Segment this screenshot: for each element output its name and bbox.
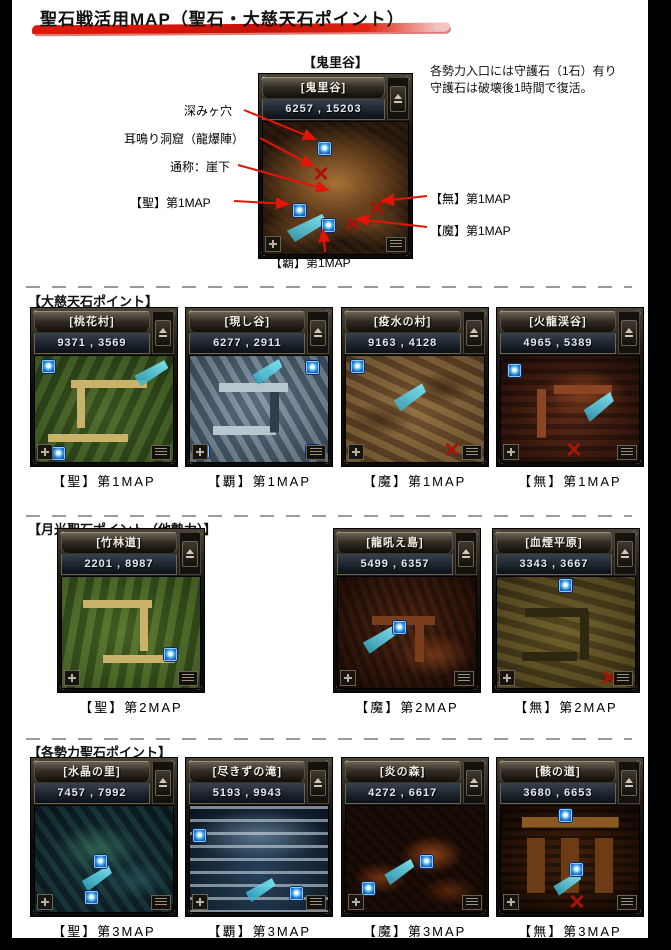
map-card: [火龍渓谷] 4965 , 5389 【無】第1MAP	[496, 307, 644, 490]
x-mark-icon	[370, 201, 384, 215]
eject-icon-bar	[625, 335, 633, 337]
section-divider	[26, 515, 632, 517]
eject-icon-triangle	[625, 778, 633, 783]
eject-icon-triangle	[394, 94, 402, 99]
map-caption: 【無】第2MAP	[492, 697, 640, 716]
eject-icon	[617, 541, 633, 567]
map-card: [水晶の里] 7457 , 7992 【聖】第3MAP	[30, 757, 178, 938]
beam-marker-icon	[584, 392, 614, 422]
x-mark-icon	[570, 895, 584, 909]
plus-button	[64, 670, 80, 686]
map-title: [疫水の村]	[345, 311, 461, 333]
map-title: [炎の森]	[345, 761, 461, 783]
map-card: [桃花村] 9371 , 3569 【聖】第1MAP	[30, 307, 178, 490]
eject-icon-bar	[186, 556, 194, 558]
eject-button	[463, 311, 485, 354]
panel-button	[306, 445, 326, 460]
stone-marker-icon	[290, 887, 303, 900]
eject-button	[152, 311, 174, 354]
minimap-image	[61, 576, 201, 689]
section-divider	[26, 738, 632, 740]
eject-icon	[155, 770, 171, 796]
plus-button	[265, 236, 281, 252]
plus-button	[340, 670, 356, 686]
eject-icon-triangle	[159, 328, 167, 333]
eject-button	[455, 532, 477, 575]
stone-marker-icon	[94, 855, 107, 868]
beam-marker-icon	[384, 859, 414, 885]
eject-icon	[310, 320, 326, 346]
eject-icon-bar	[314, 785, 322, 787]
map-coordinates: 3680 , 6653	[500, 783, 616, 804]
minimap-image	[496, 576, 636, 689]
eject-button	[307, 761, 329, 804]
map-title: [骸の道]	[500, 761, 616, 783]
stone-marker-icon	[559, 809, 572, 822]
eject-button	[618, 761, 640, 804]
map-card: [尽きずの滝] 5193 , 9943 【覇】第3MAP	[185, 757, 333, 938]
stone-marker-icon	[306, 361, 319, 374]
map-title: [桃花村]	[34, 311, 150, 333]
annotation-label: 【無】第1MAP	[430, 190, 511, 207]
beam-marker-icon	[246, 878, 276, 902]
eject-icon-triangle	[314, 328, 322, 333]
panel-button	[462, 445, 482, 460]
map-card: [骸の道] 3680 , 6653 【無】第3MAP	[496, 757, 644, 938]
plus-button	[503, 894, 519, 910]
eject-icon-triangle	[314, 778, 322, 783]
stone-marker-icon	[293, 204, 306, 217]
minimap-image	[337, 576, 477, 689]
eject-icon-triangle	[462, 549, 470, 554]
panel-button	[613, 671, 633, 686]
map-title: [火龍渓谷]	[500, 311, 616, 333]
eject-button	[387, 77, 409, 120]
panel-button	[151, 895, 171, 910]
map-title: [竹林道]	[61, 532, 177, 554]
eject-button	[179, 532, 201, 575]
page-title: 聖石戦活用MAP（聖石・大慈天石ポイント）	[40, 5, 405, 30]
map-caption: 【無】第1MAP	[496, 471, 644, 490]
eject-button	[614, 532, 636, 575]
stone-marker-icon	[322, 219, 335, 232]
eject-icon	[621, 320, 637, 346]
eject-icon-bar	[625, 785, 633, 787]
beam-marker-icon	[363, 626, 397, 654]
panel-button	[617, 445, 637, 460]
panel-button	[306, 895, 326, 910]
minimap-image	[34, 805, 174, 913]
page-frame: 聖石戦活用MAP（聖石・大慈天石ポイント） 【鬼里谷】 [鬼里谷] 6257 ,…	[0, 0, 671, 950]
eject-button	[307, 311, 329, 354]
stone-marker-icon	[351, 360, 364, 373]
beam-marker-icon	[134, 360, 168, 386]
eject-icon-bar	[470, 335, 478, 337]
eject-button	[463, 761, 485, 804]
eject-icon-bar	[621, 556, 629, 558]
map-caption: 【覇】第1MAP	[185, 471, 333, 490]
annotation-label: 通称：崖下	[170, 158, 230, 175]
eject-icon-bar	[470, 785, 478, 787]
stone-marker-icon	[508, 364, 521, 377]
eject-icon	[390, 86, 406, 112]
note-line: 各勢力入口には守護石（1石）有り	[430, 63, 617, 80]
note-text: 各勢力入口には守護石（1石）有り 守護石は破壊後1時間で復活。	[430, 63, 617, 97]
map-coordinates: 7457 , 7992	[34, 783, 150, 804]
plus-button	[192, 894, 208, 910]
section-divider	[26, 286, 632, 288]
eject-icon-triangle	[625, 328, 633, 333]
plus-button	[192, 444, 208, 460]
annotation-label: 【覇】第1MAP	[270, 254, 351, 271]
eject-icon	[466, 320, 482, 346]
minimap-image	[500, 355, 640, 463]
eject-icon-bar	[314, 335, 322, 337]
annotation-label: 【聖】第1MAP	[130, 194, 211, 211]
stone-marker-icon	[420, 855, 433, 868]
map-caption: 【聖】第2MAP	[57, 697, 205, 716]
map-caption: 【覇】第3MAP	[185, 921, 333, 938]
map-card: [龍吼え島] 5499 , 6357 【魔】第2MAP	[333, 528, 481, 716]
stone-marker-icon	[362, 882, 375, 895]
map-card: [現し谷] 6277 , 2911 【覇】第1MAP	[185, 307, 333, 490]
eject-icon-bar	[159, 335, 167, 337]
x-mark-icon	[314, 167, 328, 181]
map-caption: 【無】第3MAP	[496, 921, 644, 938]
map-coordinates: 5193 , 9943	[189, 783, 305, 804]
document-page: 聖石戦活用MAP（聖石・大慈天石ポイント） 【鬼里谷】 [鬼里谷] 6257 ,…	[12, 0, 648, 938]
map-caption: 【魔】第2MAP	[333, 697, 481, 716]
eject-icon-bar	[462, 556, 470, 558]
map-card: [血煙平原] 3343 , 3667 【無】第2MAP	[492, 528, 640, 716]
map-card: [炎の森] 4272 , 6617 【魔】第3MAP	[341, 757, 489, 938]
map-title: [龍吼え島]	[337, 532, 453, 554]
x-mark-icon	[567, 443, 581, 457]
annotation-label: 深みヶ穴	[184, 102, 232, 119]
map-coordinates: 2201 , 8987	[61, 554, 177, 575]
note-line: 守護石は破壊後1時間で復活。	[430, 80, 617, 97]
map-title: [尽きずの滝]	[189, 761, 305, 783]
map-caption: 【魔】第3MAP	[341, 921, 489, 938]
stone-marker-icon	[52, 447, 65, 460]
eject-icon	[458, 541, 474, 567]
stone-marker-icon	[318, 142, 331, 155]
plus-button	[348, 444, 364, 460]
minimap-image	[189, 805, 329, 913]
panel-button	[462, 895, 482, 910]
panel-button	[178, 671, 198, 686]
eject-icon-triangle	[186, 549, 194, 554]
map-coordinates: 6257 , 15203	[262, 99, 385, 120]
stone-marker-icon	[193, 829, 206, 842]
stone-marker-icon	[393, 621, 406, 634]
top-map-heading: 【鬼里谷】	[258, 52, 413, 71]
panel-button	[617, 895, 637, 910]
panel-button	[151, 445, 171, 460]
beam-marker-icon	[82, 865, 112, 891]
plus-button	[499, 670, 515, 686]
eject-icon	[155, 320, 171, 346]
map-coordinates: 3343 , 3667	[496, 554, 612, 575]
minimap-image	[345, 805, 485, 913]
beam-marker-icon	[252, 359, 282, 385]
annotation-label: 【魔】第1MAP	[430, 222, 511, 239]
map-card: [疫水の村] 9163 , 4128 【魔】第1MAP	[341, 307, 489, 490]
plus-button	[348, 894, 364, 910]
beam-marker-icon	[394, 384, 426, 412]
map-title: [現し谷]	[189, 311, 305, 333]
minimap-image	[189, 355, 329, 463]
eject-icon-triangle	[621, 549, 629, 554]
stone-marker-icon	[559, 579, 572, 592]
stone-marker-icon	[85, 891, 98, 904]
x-mark-icon	[445, 443, 459, 457]
map-title: [鬼里谷]	[262, 77, 385, 99]
minimap-image	[345, 355, 485, 463]
eject-icon-triangle	[470, 778, 478, 783]
beam-marker-icon	[287, 214, 327, 242]
eject-icon-bar	[159, 785, 167, 787]
map-caption: 【聖】第3MAP	[30, 921, 178, 938]
eject-icon	[182, 541, 198, 567]
eject-icon	[621, 770, 637, 796]
annotation-label: 耳鳴り洞窟（龍爆陣）	[124, 130, 244, 147]
plus-button	[503, 444, 519, 460]
map-card: [鬼里谷] 6257 , 15203	[258, 73, 413, 259]
eject-icon-triangle	[159, 778, 167, 783]
minimap-image	[34, 355, 174, 463]
eject-icon	[466, 770, 482, 796]
map-coordinates: 6277 , 2911	[189, 333, 305, 354]
minimap-image	[262, 121, 409, 255]
minimap-image	[500, 805, 640, 913]
map-title: [血煙平原]	[496, 532, 612, 554]
map-caption: 【聖】第1MAP	[30, 471, 178, 490]
map-card: [竹林道] 2201 , 8987 【聖】第2MAP	[57, 528, 205, 716]
eject-icon-triangle	[470, 328, 478, 333]
plus-button	[37, 444, 53, 460]
panel-button	[386, 237, 406, 252]
map-title: [水晶の里]	[34, 761, 150, 783]
map-coordinates: 9371 , 3569	[34, 333, 150, 354]
map-coordinates: 4272 , 6617	[345, 783, 461, 804]
map-coordinates: 5499 , 6357	[337, 554, 453, 575]
stone-marker-icon	[164, 648, 177, 661]
map-coordinates: 9163 , 4128	[345, 333, 461, 354]
stone-marker-icon	[42, 360, 55, 373]
eject-icon-bar	[394, 101, 402, 103]
eject-icon	[310, 770, 326, 796]
eject-button	[152, 761, 174, 804]
map-coordinates: 4965 , 5389	[500, 333, 616, 354]
eject-button	[618, 311, 640, 354]
stone-marker-icon	[570, 863, 583, 876]
plus-button	[37, 894, 53, 910]
map-caption: 【魔】第1MAP	[341, 471, 489, 490]
panel-button	[454, 671, 474, 686]
x-mark-icon	[346, 217, 360, 231]
